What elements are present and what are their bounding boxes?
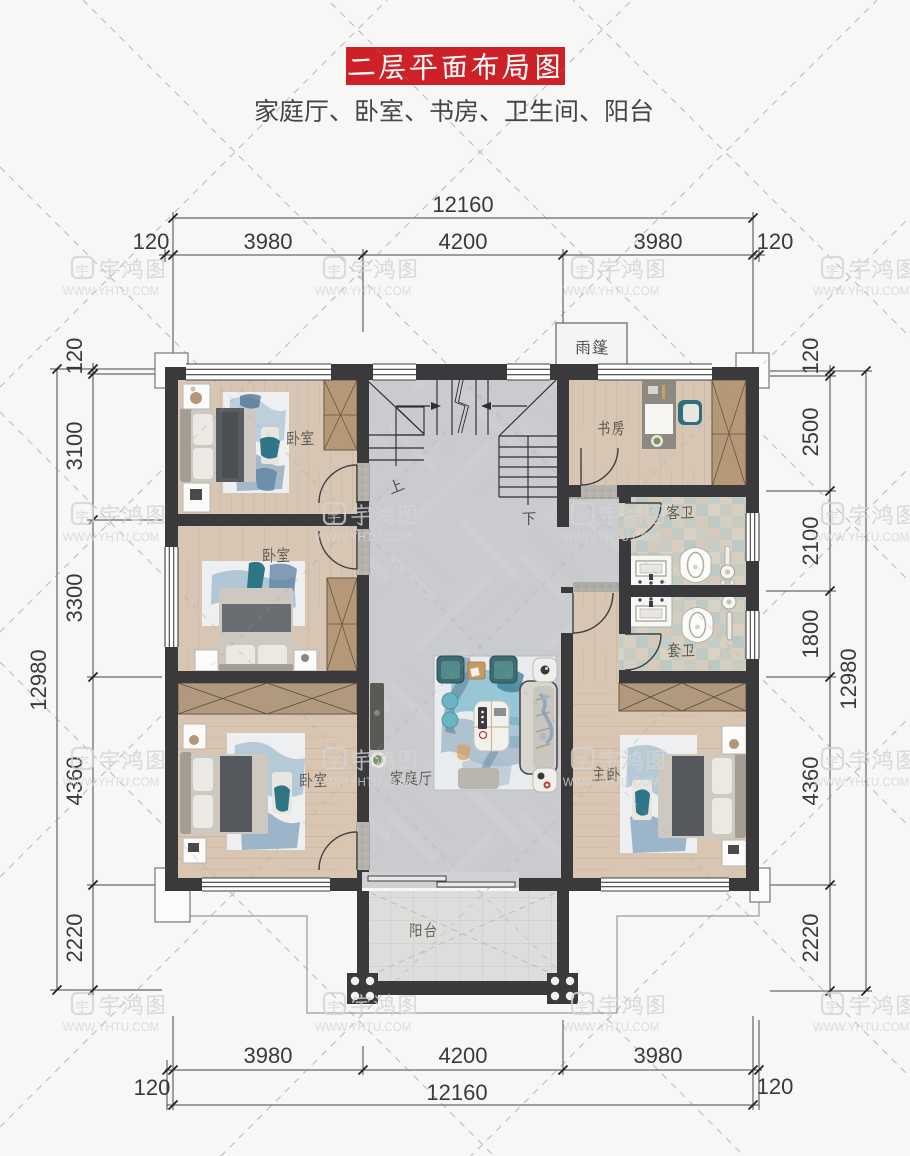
svg-text:WWW.YHTU.COM: WWW.YHTU.COM xyxy=(813,1022,909,1034)
svg-text:120: 120 xyxy=(757,229,794,254)
svg-text:4200: 4200 xyxy=(439,229,488,254)
svg-text:3980: 3980 xyxy=(244,1043,293,1068)
svg-text:WWW.YHTU.COM: WWW.YHTU.COM xyxy=(813,286,909,298)
svg-text:2500: 2500 xyxy=(798,408,823,457)
svg-text:WWW.YHTU.COM: WWW.YHTU.COM xyxy=(63,286,159,298)
svg-text:120: 120 xyxy=(134,1075,171,1100)
svg-text:12160: 12160 xyxy=(432,192,493,217)
svg-text:WWW.YHTU.COM: WWW.YHTU.COM xyxy=(315,286,411,298)
svg-text:3100: 3100 xyxy=(62,422,87,471)
svg-text:12980: 12980 xyxy=(26,649,51,710)
svg-text:1800: 1800 xyxy=(798,610,823,659)
svg-text:3980: 3980 xyxy=(634,1043,683,1068)
svg-text:WWW.YHTU.COM: WWW.YHTU.COM xyxy=(813,777,909,789)
svg-text:2220: 2220 xyxy=(62,914,87,963)
svg-text:3980: 3980 xyxy=(634,229,683,254)
svg-text:WWW.YHTU.COM: WWW.YHTU.COM xyxy=(63,532,159,544)
svg-text:WWW.YHTU.COM: WWW.YHTU.COM xyxy=(63,1022,159,1034)
svg-text:4200: 4200 xyxy=(439,1043,488,1068)
svg-text:12160: 12160 xyxy=(426,1080,487,1105)
svg-text:120: 120 xyxy=(62,338,87,375)
svg-text:12980: 12980 xyxy=(836,648,861,709)
svg-text:WWW.YHTU.COM: WWW.YHTU.COM xyxy=(563,532,659,544)
svg-text:WWW.YHTU.COM: WWW.YHTU.COM xyxy=(563,286,659,298)
svg-text:3300: 3300 xyxy=(62,574,87,623)
svg-text:WWW.YHTU.COM: WWW.YHTU.COM xyxy=(63,777,159,789)
svg-text:WWW.YHTU.COM: WWW.YHTU.COM xyxy=(563,777,659,789)
svg-text:120: 120 xyxy=(133,229,170,254)
svg-text:WWW.YHTU.COM: WWW.YHTU.COM xyxy=(315,777,411,789)
svg-text:WWW.YHTU.COM: WWW.YHTU.COM xyxy=(315,532,411,544)
svg-text:WWW.YHTU.COM: WWW.YHTU.COM xyxy=(315,1022,411,1034)
svg-text:WWW.YHTU.COM: WWW.YHTU.COM xyxy=(813,532,909,544)
svg-text:3980: 3980 xyxy=(244,229,293,254)
svg-text:WWW.YHTU.COM: WWW.YHTU.COM xyxy=(563,1022,659,1034)
svg-text:2220: 2220 xyxy=(798,914,823,963)
svg-text:120: 120 xyxy=(798,338,823,375)
svg-text:120: 120 xyxy=(757,1074,794,1099)
